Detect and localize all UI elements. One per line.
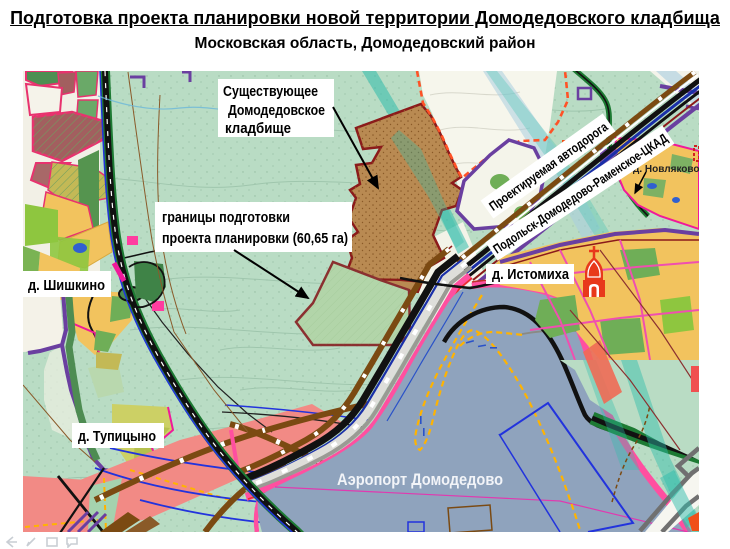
svg-text:кладбище: кладбище bbox=[225, 121, 291, 137]
svg-text:проекта планировки (60,65 га): проекта планировки (60,65 га) bbox=[162, 231, 348, 247]
svg-text:Домодедовское: Домодедовское bbox=[228, 103, 325, 119]
svg-text:Существующее: Существующее bbox=[223, 84, 318, 100]
svg-text:д. Шишкино: д. Шишкино bbox=[28, 277, 105, 294]
svg-text:д. Истомиха: д. Истомиха bbox=[492, 266, 570, 283]
svg-text:д. Тупицыно: д. Тупицыно bbox=[78, 428, 156, 445]
svg-text:Аэропорт Домодедово: Аэропорт Домодедово bbox=[337, 470, 503, 489]
svg-text:границы подготовки: границы подготовки bbox=[162, 210, 290, 226]
svg-text:д. Новляково: д. Новляково bbox=[633, 164, 699, 175]
